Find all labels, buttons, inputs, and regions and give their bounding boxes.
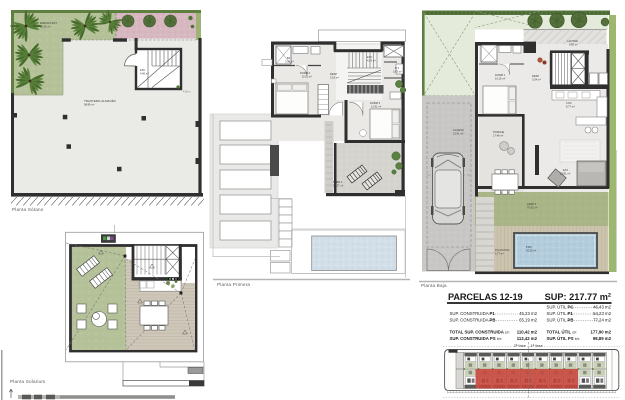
svg-text:6.77 m²: 6.77 m² bbox=[495, 251, 504, 255]
svg-text:Planta Baja: Planta Baja bbox=[421, 283, 447, 288]
svg-text:SUP. CONSTRUIDA PS b/r:: SUP. CONSTRUIDA PS b/r: bbox=[450, 336, 502, 341]
svg-text:CESP 2: CESP 2 bbox=[527, 202, 537, 206]
svg-text:TOTAL SUP. CONSTRUIDA s/r:: TOTAL SUP. CONSTRUIDA s/r: bbox=[450, 330, 510, 335]
svg-text:DORM 1: DORM 1 bbox=[495, 73, 506, 77]
svg-text:3.00 m²: 3.00 m² bbox=[285, 59, 294, 63]
svg-text:113,42 m2: 113,42 m2 bbox=[517, 336, 538, 341]
svg-text:EST: EST bbox=[563, 168, 568, 172]
svg-text:177,90 m2: 177,90 m2 bbox=[590, 330, 611, 335]
svg-text:10.21 m²: 10.21 m² bbox=[302, 74, 312, 78]
svg-text:23.81 m²: 23.81 m² bbox=[560, 171, 570, 175]
svg-text:55.26 m²: 55.26 m² bbox=[40, 24, 50, 28]
svg-text:SUP. ÚTIL PC: SUP. ÚTIL PC bbox=[547, 304, 574, 309]
svg-text:54,23 m2: 54,23 m2 bbox=[593, 311, 612, 316]
svg-text:2ª fase: 2ª fase bbox=[514, 343, 527, 348]
svg-text:ESC: ESC bbox=[140, 68, 145, 72]
svg-text:3.18 m²: 3.18 m² bbox=[330, 75, 339, 79]
svg-text:98.89 m²: 98.89 m² bbox=[84, 103, 94, 107]
svg-text:PLAYA PISC: PLAYA PISC bbox=[495, 248, 510, 252]
svg-text:DESP: DESP bbox=[532, 74, 539, 78]
svg-text:10.26 m²: 10.26 m² bbox=[495, 76, 505, 80]
svg-text:PORCHE: PORCHE bbox=[493, 130, 504, 134]
svg-text:TERR 1: TERR 1 bbox=[333, 180, 343, 184]
svg-text:110,42 m2: 110,42 m2 bbox=[517, 330, 538, 335]
svg-text:COC: COC bbox=[566, 101, 572, 105]
svg-text:Planta Solarium: Planta Solarium bbox=[10, 379, 45, 384]
svg-text:TRASTERO-ALMACÉN: TRASTERO-ALMACÉN bbox=[84, 98, 116, 103]
svg-text:3.83 m²: 3.83 m² bbox=[393, 69, 402, 73]
svg-text:SUP. CONSTRUIDA P1: SUP. CONSTRUIDA P1 bbox=[450, 311, 496, 316]
svg-text:PARCELAS 12-19: PARCELAS 12-19 bbox=[448, 292, 523, 302]
svg-text:4.53 m²: 4.53 m² bbox=[367, 58, 376, 62]
svg-text:B 3: B 3 bbox=[395, 66, 399, 70]
svg-text:77,24 m2: 77,24 m2 bbox=[593, 318, 612, 323]
svg-text:PISC: PISC bbox=[526, 245, 532, 249]
svg-text:ESPACIO EXT: ESPACIO EXT bbox=[40, 21, 58, 25]
svg-text:Planta Sótano: Planta Sótano bbox=[12, 207, 44, 212]
svg-text:4.90 m²: 4.90 m² bbox=[140, 71, 149, 75]
svg-text:SUP. CONSTRUIDA PB: SUP. CONSTRUIDA PB bbox=[450, 318, 496, 323]
svg-text:ACCESO: ACCESO bbox=[453, 128, 464, 132]
svg-text:98,89 m2: 98,89 m2 bbox=[593, 336, 612, 341]
svg-text:DORM 3: DORM 3 bbox=[370, 101, 381, 105]
svg-text:12.91 m²: 12.91 m² bbox=[371, 104, 381, 108]
svg-text:70.92 m²: 70.92 m² bbox=[527, 205, 537, 209]
svg-text:3.34 m²: 3.34 m² bbox=[532, 77, 541, 81]
svg-text:B2: B2 bbox=[287, 56, 291, 60]
svg-text:DORM 2: DORM 2 bbox=[300, 71, 311, 75]
svg-text:45,23 m2: 45,23 m2 bbox=[519, 311, 538, 316]
svg-text:ESC: ESC bbox=[367, 55, 372, 59]
svg-text:SUP. ÚTIL P1: SUP. ÚTIL P1 bbox=[547, 311, 574, 316]
svg-text:TOTAL ÚTIL s/r:: TOTAL ÚTIL s/r: bbox=[547, 330, 578, 335]
svg-text:14.27 m²: 14.27 m² bbox=[333, 183, 343, 187]
svg-text:Planta Primera: Planta Primera bbox=[217, 282, 250, 287]
svg-text:LAV/TND: LAV/TND bbox=[567, 39, 578, 43]
svg-text:1ª fase: 1ª fase bbox=[531, 343, 544, 348]
svg-text:DESP: DESP bbox=[330, 72, 337, 76]
svg-text:17.48 m²: 17.48 m² bbox=[493, 133, 503, 137]
svg-text:46,43 m2: 46,43 m2 bbox=[593, 304, 612, 309]
svg-text:4.60 m: 4.60 m bbox=[183, 91, 190, 94]
svg-text:9.60 m²: 9.60 m² bbox=[569, 42, 578, 46]
svg-text:SUP: 217.77 m²: SUP: 217.77 m² bbox=[545, 292, 611, 302]
svg-text:SUP. ÚTIL PB: SUP. ÚTIL PB bbox=[547, 318, 574, 323]
svg-text:65,19 m2: 65,19 m2 bbox=[519, 318, 538, 323]
svg-text:SUP. ÚTIL PS b/r:: SUP. ÚTIL PS b/r: bbox=[547, 336, 580, 341]
svg-text:21.91 m²: 21.91 m² bbox=[453, 131, 463, 135]
svg-text:32.50 m²: 32.50 m² bbox=[526, 248, 536, 252]
svg-text:8.77 m²: 8.77 m² bbox=[566, 104, 575, 108]
